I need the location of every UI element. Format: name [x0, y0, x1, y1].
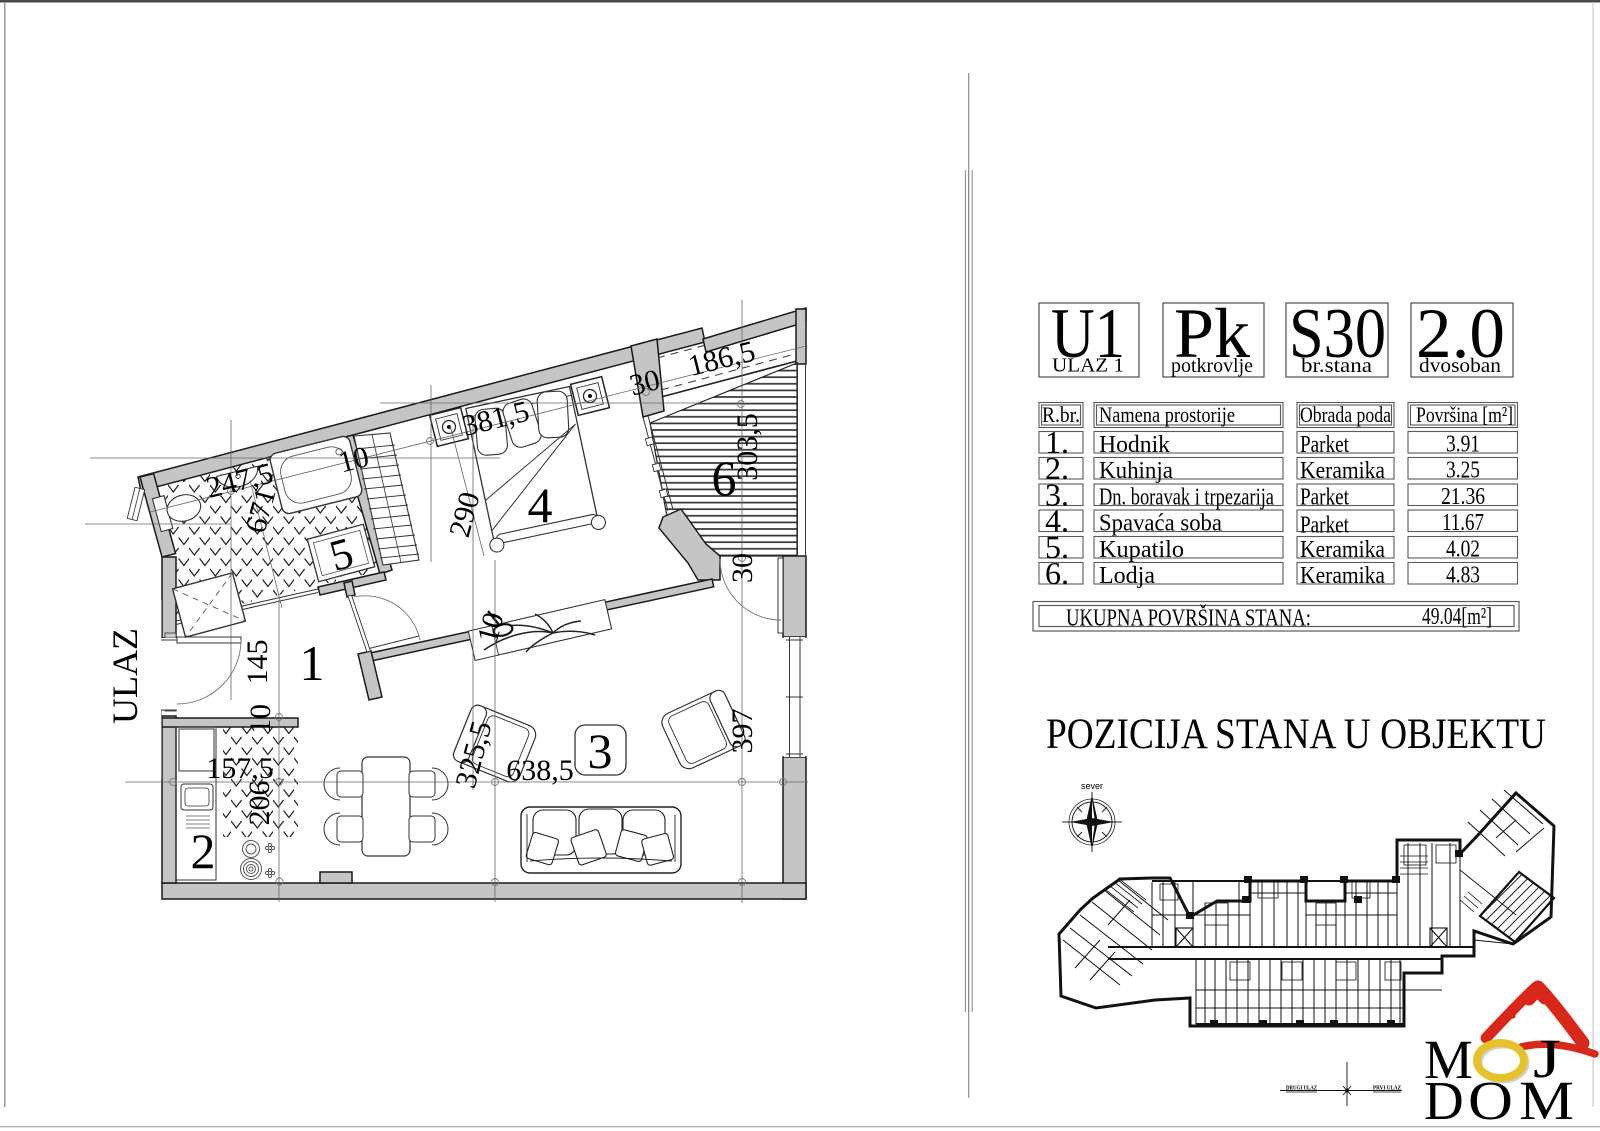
svg-text:206: 206	[243, 781, 276, 826]
svg-text:6.: 6.	[1045, 555, 1069, 591]
svg-text:1: 1	[300, 635, 325, 691]
svg-text:397: 397	[726, 709, 759, 754]
svg-text:Keramika: Keramika	[1300, 458, 1385, 484]
svg-text:Hodnik: Hodnik	[1099, 432, 1170, 458]
svg-text:3.91: 3.91	[1446, 432, 1480, 458]
svg-text:Površina [m²]: Površina [m²]	[1416, 402, 1513, 427]
svg-text:3: 3	[588, 723, 613, 779]
svg-text:2: 2	[191, 823, 216, 879]
svg-text:Kuhinja: Kuhinja	[1099, 458, 1173, 484]
svg-text:Dn. boravak i trpezarija: Dn. boravak i trpezarija	[1099, 485, 1274, 511]
svg-text:sever: sever	[1081, 781, 1103, 791]
svg-text:10: 10	[244, 704, 277, 734]
svg-text:4.83: 4.83	[1446, 563, 1480, 589]
svg-text:Namena prostorije: Namena prostorije	[1099, 402, 1235, 427]
svg-text:M: M	[1519, 1070, 1574, 1131]
svg-text:Lodja: Lodja	[1099, 563, 1155, 589]
svg-text:Spavaća soba: Spavaća soba	[1099, 511, 1222, 537]
svg-text:UKUPNA POVRŠINA STANA:: UKUPNA POVRŠINA STANA:	[1066, 605, 1311, 632]
svg-text:3.25: 3.25	[1446, 458, 1480, 484]
svg-text:PRVI ULAZ: PRVI ULAZ	[1373, 1085, 1401, 1092]
svg-text:4: 4	[528, 477, 553, 533]
svg-text:49.04[m²]: 49.04[m²]	[1422, 604, 1492, 630]
svg-text:DRUGI ULAZ: DRUGI ULAZ	[1286, 1085, 1317, 1092]
svg-text:Keramika: Keramika	[1300, 537, 1385, 563]
svg-text:21.36: 21.36	[1441, 484, 1485, 510]
svg-text:6: 6	[712, 450, 737, 506]
svg-text:O: O	[1468, 1070, 1513, 1131]
svg-text:145: 145	[241, 640, 274, 685]
svg-text:Parket: Parket	[1300, 513, 1349, 539]
svg-text:potkrovlje: potkrovlje	[1171, 355, 1253, 377]
svg-text:157,5: 157,5	[206, 752, 274, 785]
svg-text:D: D	[1424, 1070, 1464, 1131]
svg-text:Kupatilo: Kupatilo	[1099, 537, 1184, 563]
svg-text:4.02: 4.02	[1446, 537, 1480, 563]
svg-text:30: 30	[726, 553, 759, 583]
svg-text:638,5: 638,5	[506, 754, 574, 787]
svg-text:11.67: 11.67	[1442, 510, 1484, 536]
svg-text:Keramika: Keramika	[1300, 563, 1385, 589]
svg-text:Parket: Parket	[1300, 432, 1349, 458]
svg-text:Parket: Parket	[1300, 485, 1349, 511]
svg-text:POZICIJA STANA U OBJEKTU: POZICIJA STANA U OBJEKTU	[1046, 711, 1546, 758]
svg-text:Obrada poda: Obrada poda	[1300, 402, 1391, 427]
svg-text:br.stana: br.stana	[1301, 355, 1372, 377]
svg-text:dvosoban: dvosoban	[1419, 355, 1501, 377]
svg-text:ULAZ 1: ULAZ 1	[1052, 355, 1124, 377]
svg-text:ULAZ: ULAZ	[105, 628, 145, 724]
